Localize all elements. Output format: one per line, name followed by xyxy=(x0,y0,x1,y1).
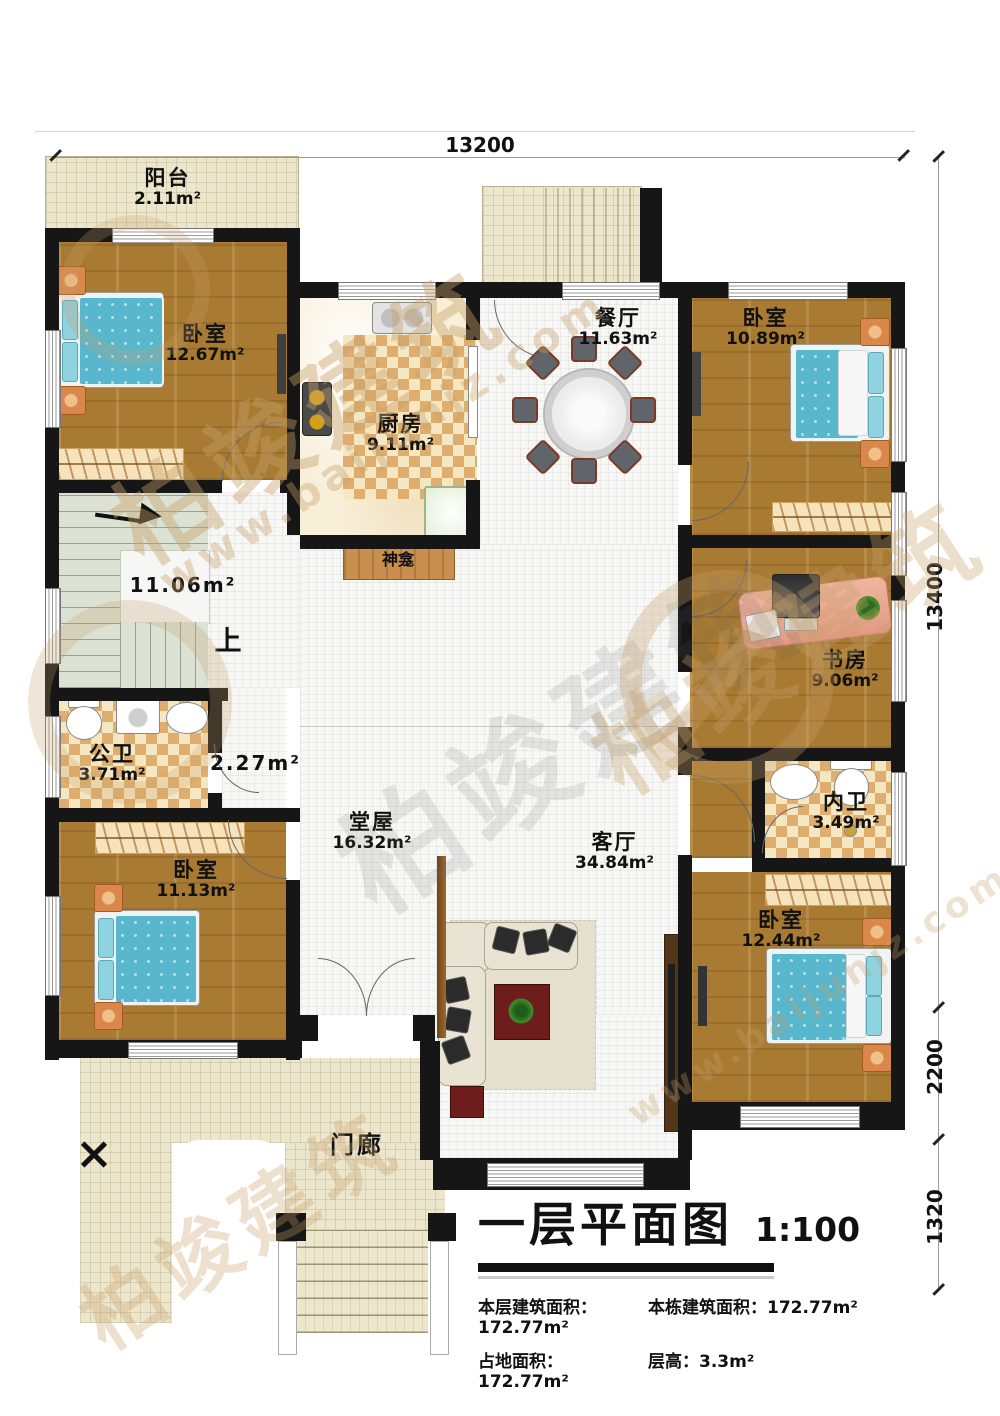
wall xyxy=(420,1041,440,1160)
room-area: 11.13m² xyxy=(130,882,262,902)
stat-label: 本层建筑面积： xyxy=(478,1298,597,1318)
pillow xyxy=(866,996,882,1036)
kitchen-label: 厨房 9.11m² xyxy=(333,412,468,456)
wardrobe xyxy=(95,822,245,854)
dimension-right-bottom-value: 1320 xyxy=(923,1187,947,1247)
room-area: 11.63m² xyxy=(548,330,688,350)
wall xyxy=(45,480,222,493)
terrace-slats xyxy=(545,188,639,283)
hallway-label: 2.27m² xyxy=(198,752,313,775)
sofa-cushion xyxy=(444,1006,472,1034)
bed-mattress xyxy=(114,914,198,1004)
tv xyxy=(277,334,286,394)
wall xyxy=(286,808,300,822)
public-bath-label: 公卫 3.71m² xyxy=(48,742,176,786)
stat-building-area: 本栋建筑面积：172.77m² xyxy=(648,1293,948,1338)
room-area: 3.71m² xyxy=(48,766,176,786)
porch-pillar-cap xyxy=(428,1213,456,1241)
room-area: 3.49m² xyxy=(782,814,910,834)
pillow xyxy=(62,342,78,382)
stat-value: 172.77m² xyxy=(478,1318,569,1338)
wardrobe xyxy=(58,448,184,480)
plant xyxy=(508,998,534,1024)
room-name: 卧室 xyxy=(716,908,846,932)
pillow xyxy=(868,396,884,438)
tv xyxy=(698,966,707,1026)
tv xyxy=(692,352,701,416)
title-block: 一层平面图 1:100 本层建筑面积：172.77m² 本栋建筑面积：172.7… xyxy=(478,1186,948,1392)
room-area: 2.27m² xyxy=(198,752,313,775)
window xyxy=(128,1042,238,1059)
pillow xyxy=(866,956,882,996)
hall-grid-line xyxy=(300,726,678,727)
window xyxy=(112,228,214,244)
dimension-line-top xyxy=(55,157,905,158)
stat-label: 占地面积： xyxy=(478,1352,563,1372)
window xyxy=(891,348,907,462)
stairs-area-label: 11.06m² xyxy=(118,574,248,597)
hall-divider xyxy=(437,856,446,1038)
stat-value: 3.3m² xyxy=(699,1352,754,1372)
up-text: 上 xyxy=(208,626,248,657)
wall xyxy=(466,480,480,535)
room-name: 卧室 xyxy=(140,322,270,346)
stat-floor-area: 本层建筑面积：172.77m² xyxy=(478,1293,648,1338)
sofa-cushion xyxy=(442,976,470,1004)
window xyxy=(487,1163,644,1187)
bedroom-tr-label: 卧室 10.89m² xyxy=(698,306,833,350)
wall xyxy=(413,1015,435,1041)
nightstand xyxy=(862,1044,892,1072)
plan-scale: 1:100 xyxy=(755,1210,860,1249)
bathroom-sink xyxy=(166,702,208,734)
room-area: 2.11m² xyxy=(95,190,240,210)
room-area: 34.84m² xyxy=(542,854,687,874)
bed-mattress xyxy=(770,952,848,1042)
porch-label: 门廊 xyxy=(292,1132,422,1160)
window xyxy=(45,896,61,996)
wall xyxy=(690,748,905,761)
wall xyxy=(300,535,480,549)
room-area: 10.89m² xyxy=(698,330,833,350)
tv xyxy=(668,964,675,1096)
window xyxy=(728,282,848,300)
room-area: 12.44m² xyxy=(716,932,846,952)
bedroom-bl-label: 卧室 11.13m² xyxy=(130,858,262,902)
window xyxy=(740,1106,860,1128)
stat-value: 172.77m² xyxy=(767,1298,858,1318)
nightstand xyxy=(860,440,890,468)
window xyxy=(45,330,61,428)
nightstand xyxy=(860,318,890,346)
wardrobe xyxy=(765,874,893,906)
washing-machine xyxy=(116,698,160,734)
inner-bath-label: 内卫 3.49m² xyxy=(782,790,910,834)
room-area: 12.67m² xyxy=(140,346,270,366)
porch-floor xyxy=(80,1143,172,1323)
pillow xyxy=(868,352,884,394)
stat-height: 层高：3.3m² xyxy=(648,1347,948,1392)
bed-blanket xyxy=(846,954,866,1038)
bed-blanket xyxy=(838,350,868,436)
wall xyxy=(640,188,662,285)
porch-column xyxy=(278,1241,297,1355)
nightstand xyxy=(94,1002,123,1030)
study-label: 书房 9.06m² xyxy=(775,648,915,692)
plant xyxy=(856,596,880,620)
end-table xyxy=(450,1086,484,1118)
stat-value: 172.77m² xyxy=(478,1372,569,1392)
title-underline-thin xyxy=(478,1276,774,1279)
room-name: 客厅 xyxy=(542,830,687,854)
room-name: 门廊 xyxy=(292,1132,422,1160)
stat-label: 层高： xyxy=(648,1352,699,1372)
living-label: 客厅 34.84m² xyxy=(542,830,687,874)
pillow xyxy=(98,918,114,958)
dining-chair xyxy=(512,397,538,423)
room-name: 餐厅 xyxy=(548,306,688,330)
room-name: 内卫 xyxy=(782,790,910,814)
porch-pillar-cap xyxy=(276,1213,306,1241)
window xyxy=(562,282,660,300)
hall-label: 堂屋 16.32m² xyxy=(302,810,442,854)
floor-plan-canvas: 阳台 2.11m² 卧室 12.67m² 厨房 9.11m² 餐厅 11.63m… xyxy=(0,0,1000,1416)
porch-column xyxy=(430,1241,449,1355)
stat-footprint: 占地面积：172.77m² xyxy=(478,1347,648,1392)
keyboard xyxy=(784,618,818,631)
kitchen-sink xyxy=(372,302,432,334)
wall xyxy=(45,688,228,701)
wall xyxy=(466,282,480,340)
wall xyxy=(690,535,905,548)
border-line xyxy=(35,131,915,132)
stove xyxy=(302,382,332,436)
room-name: 厨房 xyxy=(333,412,468,436)
pillow xyxy=(98,960,114,1000)
room-name: 卧室 xyxy=(130,858,262,882)
title-underline xyxy=(478,1263,774,1272)
nightstand xyxy=(94,884,123,912)
stair-arrow-head xyxy=(139,503,164,528)
balcony-label: 阳台 2.11m² xyxy=(95,166,240,210)
window xyxy=(45,588,61,664)
wall xyxy=(288,1015,318,1041)
pillow xyxy=(62,300,78,340)
porch-floor xyxy=(80,1058,445,1143)
window xyxy=(891,492,907,576)
stat-label: 本栋建筑面积： xyxy=(648,1298,767,1318)
shrine-label: 神龛 xyxy=(343,551,453,569)
window xyxy=(338,282,436,300)
kitchen-door-leaf xyxy=(468,346,478,438)
room-name: 阳台 xyxy=(95,166,240,190)
dimension-right-lower-value: 2200 xyxy=(923,1037,947,1097)
dimension-tick xyxy=(897,149,909,161)
stairs-up-label: 上 xyxy=(208,626,248,657)
room-name: 神龛 xyxy=(343,551,453,569)
nightstand xyxy=(56,266,86,295)
monitor xyxy=(772,574,820,618)
room-area: 9.06m² xyxy=(775,672,915,692)
wall xyxy=(752,858,905,872)
staircase-lower xyxy=(120,622,208,688)
wall xyxy=(280,480,300,493)
toilet xyxy=(66,706,102,740)
room-area: 11.06m² xyxy=(118,574,248,597)
entry-steps xyxy=(296,1230,428,1333)
dining-label: 餐厅 11.63m² xyxy=(548,306,688,350)
dimension-top-value: 13200 xyxy=(430,133,530,157)
room-name: 卧室 xyxy=(698,306,833,330)
room-name: 书房 xyxy=(775,648,915,672)
sofa-cushion xyxy=(522,928,550,956)
dimension-right-value: 13400 xyxy=(923,562,947,632)
room-name: 堂屋 xyxy=(302,810,442,834)
room-area: 16.32m² xyxy=(302,834,442,854)
porch-cutout xyxy=(172,1140,285,1324)
room-area: 9.11m² xyxy=(333,436,468,456)
dimension-line-right xyxy=(938,157,939,1292)
wardrobe xyxy=(772,502,892,532)
plan-title: 一层平面图 xyxy=(478,1186,733,1255)
nightstand xyxy=(862,918,892,946)
room-name: 公卫 xyxy=(48,742,176,766)
dining-chair xyxy=(571,458,597,484)
bedroom-tl-label: 卧室 12.67m² xyxy=(140,322,270,366)
dining-chair xyxy=(630,397,656,423)
bedroom-br-label: 卧室 12.44m² xyxy=(716,908,846,952)
